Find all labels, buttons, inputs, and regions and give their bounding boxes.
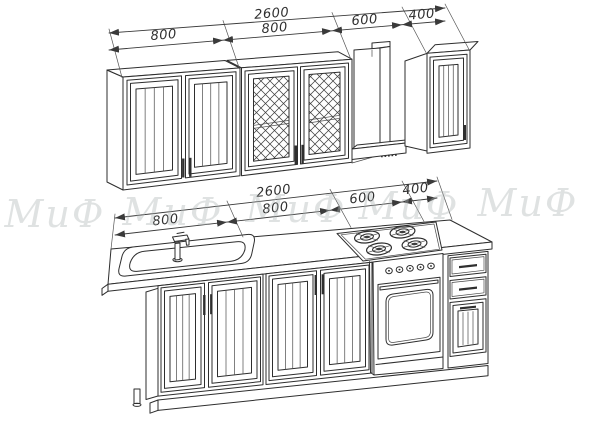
faucet-body (175, 243, 180, 260)
side-panel (405, 53, 427, 151)
watermark-text: МиФ (477, 181, 579, 225)
watermark-band: МиФ МиФ МиФ МиФ МиФ (4, 181, 579, 236)
chimney-front (354, 48, 380, 150)
sink-base-cabinet-800 (146, 274, 263, 399)
counter-left-end (102, 284, 108, 295)
control-dot (388, 155, 390, 157)
drawer-unit-400 (448, 251, 488, 368)
base-cabinet-800 (266, 262, 372, 384)
witness-line (227, 201, 243, 237)
handle (295, 146, 297, 165)
watermark-text: МиФ (358, 184, 460, 228)
control-dot (381, 156, 383, 158)
wall-cabinet-800-left (107, 61, 240, 191)
kitchen-technical-drawing: 2600 800 800 600 400 2600 800 800 600 40… (0, 0, 600, 424)
dim-upper-seg4: 400 (408, 6, 436, 23)
plinth-left (150, 400, 158, 413)
cooker-hood-600 (352, 42, 411, 164)
wall-cabinet-400 (405, 42, 478, 154)
control-dot (385, 155, 387, 157)
handle (301, 145, 303, 164)
glass-pane (254, 76, 290, 161)
handle (464, 125, 466, 140)
knob-dot (388, 270, 390, 272)
watermark-text: МиФ (122, 190, 224, 234)
handle (203, 295, 205, 315)
handle (210, 294, 212, 314)
dim-upper-seg1: 800 (150, 27, 178, 44)
chimney-side (380, 47, 390, 148)
knob-dot (399, 269, 401, 271)
knob-dot (430, 265, 432, 267)
knob-dot (409, 267, 411, 269)
faucet-tip (186, 239, 189, 245)
side-panel (107, 70, 123, 190)
dim-upper-seg3: 600 (351, 12, 379, 29)
handle (189, 158, 191, 177)
glass-pane (309, 72, 340, 154)
handle (315, 275, 317, 295)
watermark-text: МиФ (245, 187, 347, 231)
watermark-text: МиФ (4, 192, 106, 236)
control-dot (395, 154, 397, 156)
drawing-canvas: 2600 800 800 600 400 2600 800 800 600 40… (0, 0, 600, 424)
control-dot (392, 154, 394, 156)
wall-cabinet-800-glass (227, 52, 352, 176)
witness-line (111, 214, 115, 249)
side-panel (146, 288, 158, 399)
handle (322, 274, 324, 294)
oven-window (386, 289, 433, 345)
handle (182, 159, 184, 178)
dim-upper-seg2: 800 (261, 20, 289, 37)
knob-dot (420, 266, 422, 268)
leg (134, 389, 140, 404)
leg-foot (133, 403, 141, 406)
